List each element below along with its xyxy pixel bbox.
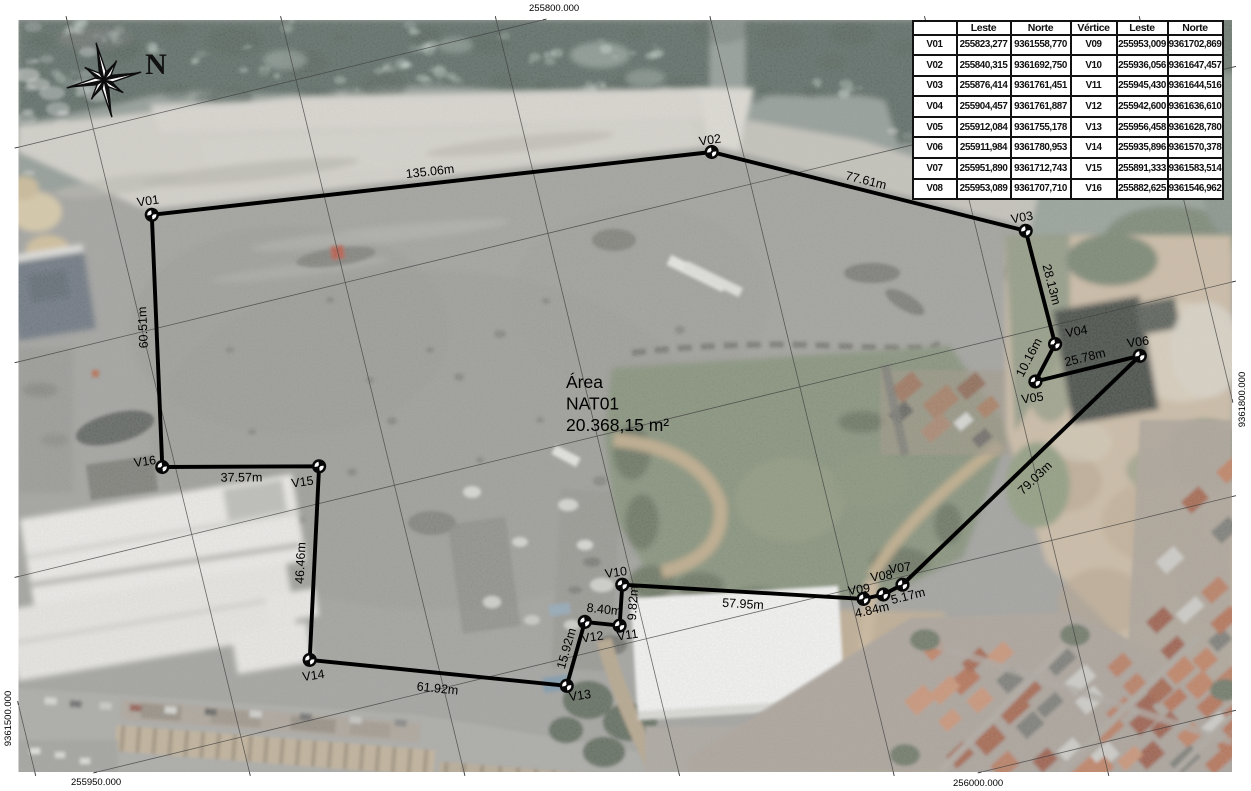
svg-text:37.57m: 37.57m xyxy=(221,470,263,484)
svg-text:20.368,15 m²: 20.368,15 m² xyxy=(566,415,669,435)
svg-text:NAT01: NAT01 xyxy=(566,394,619,414)
svg-text:60.51m: 60.51m xyxy=(135,306,151,348)
svg-text:57.95m: 57.95m xyxy=(722,596,764,612)
svg-text:N: N xyxy=(145,48,167,81)
svg-text:Área: Área xyxy=(566,372,603,392)
svg-text:46.46m: 46.46m xyxy=(292,542,308,584)
svg-text:9.82m: 9.82m xyxy=(625,585,641,621)
svg-text:V11: V11 xyxy=(616,627,639,644)
